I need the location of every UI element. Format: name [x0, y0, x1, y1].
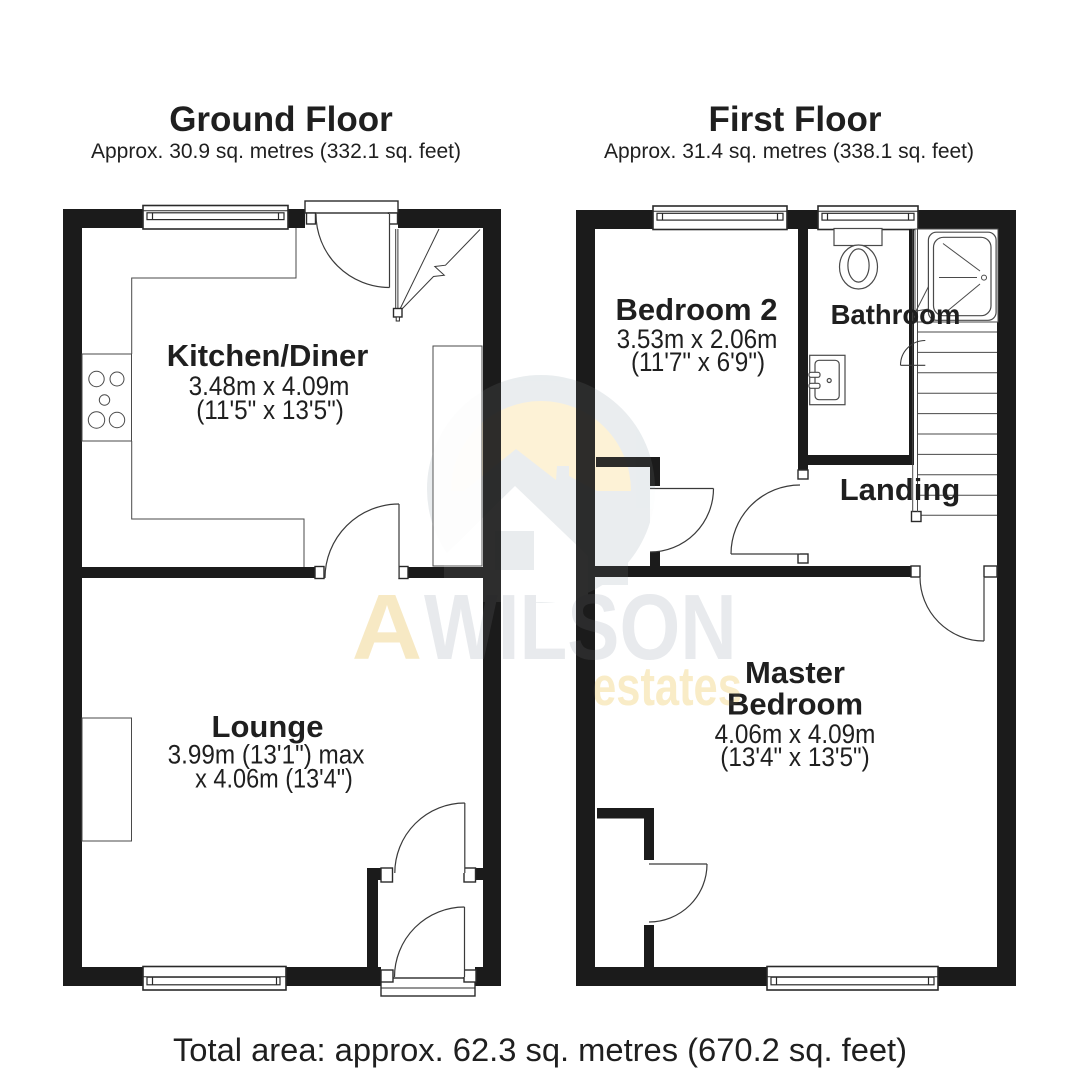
svg-text:(11'7" x 6'9"): (11'7" x 6'9") — [631, 348, 765, 377]
svg-text:First Floor: First Floor — [708, 100, 881, 139]
svg-text:(13'4" x 13'5"): (13'4" x 13'5") — [720, 743, 869, 772]
svg-text:x 4.06m (13'4"): x 4.06m (13'4") — [195, 764, 353, 794]
svg-text:Approx. 30.9 sq. metres (332.1: Approx. 30.9 sq. metres (332.1 sq. feet) — [91, 140, 461, 163]
svg-text:Lounge: Lounge — [212, 709, 324, 744]
svg-text:Total area: approx. 62.3 sq. m: Total area: approx. 62.3 sq. metres (670… — [173, 1031, 907, 1068]
svg-text:Kitchen/Diner: Kitchen/Diner — [167, 338, 369, 373]
svg-text:Bedroom: Bedroom — [727, 687, 863, 722]
svg-text:Ground Floor: Ground Floor — [169, 100, 393, 139]
svg-text:Landing: Landing — [840, 472, 961, 507]
svg-text:Bedroom 2: Bedroom 2 — [616, 292, 778, 327]
svg-text:Approx. 31.4 sq. metres (338.1: Approx. 31.4 sq. metres (338.1 sq. feet) — [604, 140, 974, 163]
svg-text:Master: Master — [745, 655, 845, 690]
svg-text:Bathroom: Bathroom — [831, 299, 961, 330]
svg-text:(11'5" x 13'5"): (11'5" x 13'5") — [196, 396, 344, 425]
